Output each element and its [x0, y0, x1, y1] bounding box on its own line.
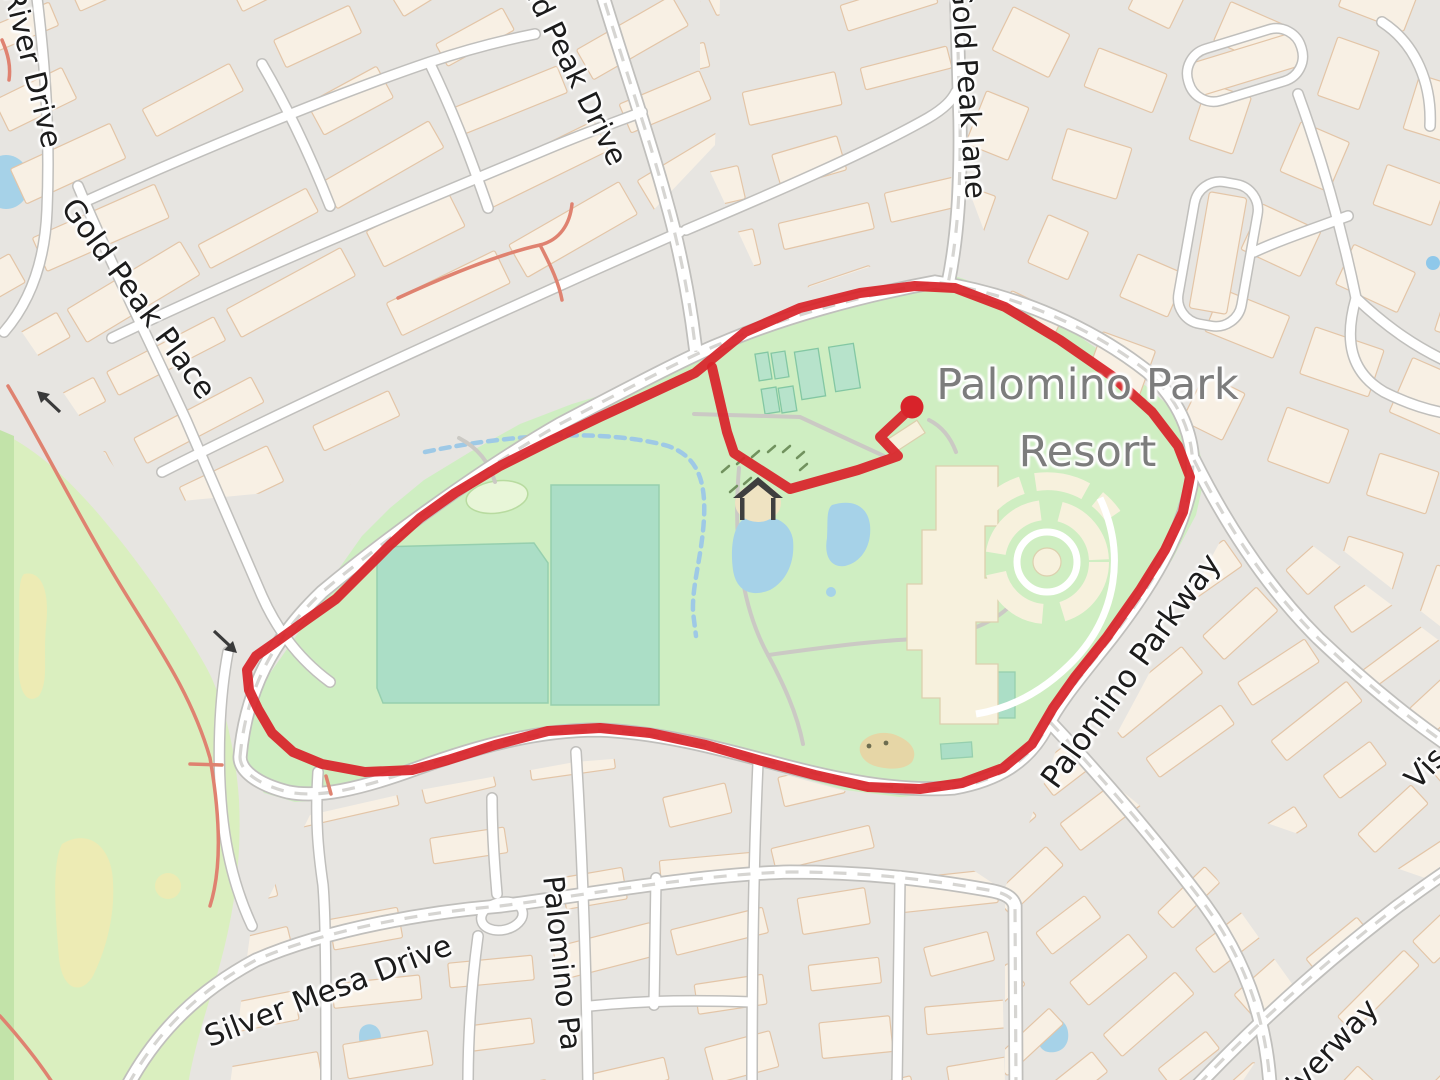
- map-canvas: [0, 0, 1440, 1080]
- map-viewport[interactable]: River Drive Gold Peak Place Gold Peak Dr…: [0, 0, 1440, 1080]
- park-name-line2: Resort: [895, 419, 1280, 486]
- park-name-label: Palomino Park Resort: [895, 352, 1280, 486]
- park-name-line1: Palomino Park: [895, 352, 1280, 419]
